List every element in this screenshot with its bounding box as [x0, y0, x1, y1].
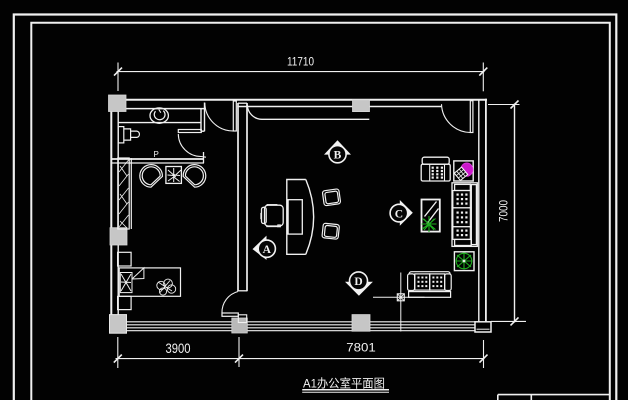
- svg-text:C: C: [395, 208, 403, 220]
- svg-text:A1办公室平面图: A1办公室平面图: [303, 376, 385, 391]
- svg-text:B: B: [334, 150, 342, 162]
- svg-text:P: P: [154, 150, 159, 159]
- svg-text:D: D: [354, 276, 362, 288]
- svg-text:11710: 11710: [287, 54, 314, 68]
- svg-text:7801: 7801: [346, 341, 376, 355]
- svg-text:3900: 3900: [166, 340, 191, 356]
- svg-text:A: A: [263, 244, 272, 256]
- svg-text:7000: 7000: [496, 200, 510, 222]
